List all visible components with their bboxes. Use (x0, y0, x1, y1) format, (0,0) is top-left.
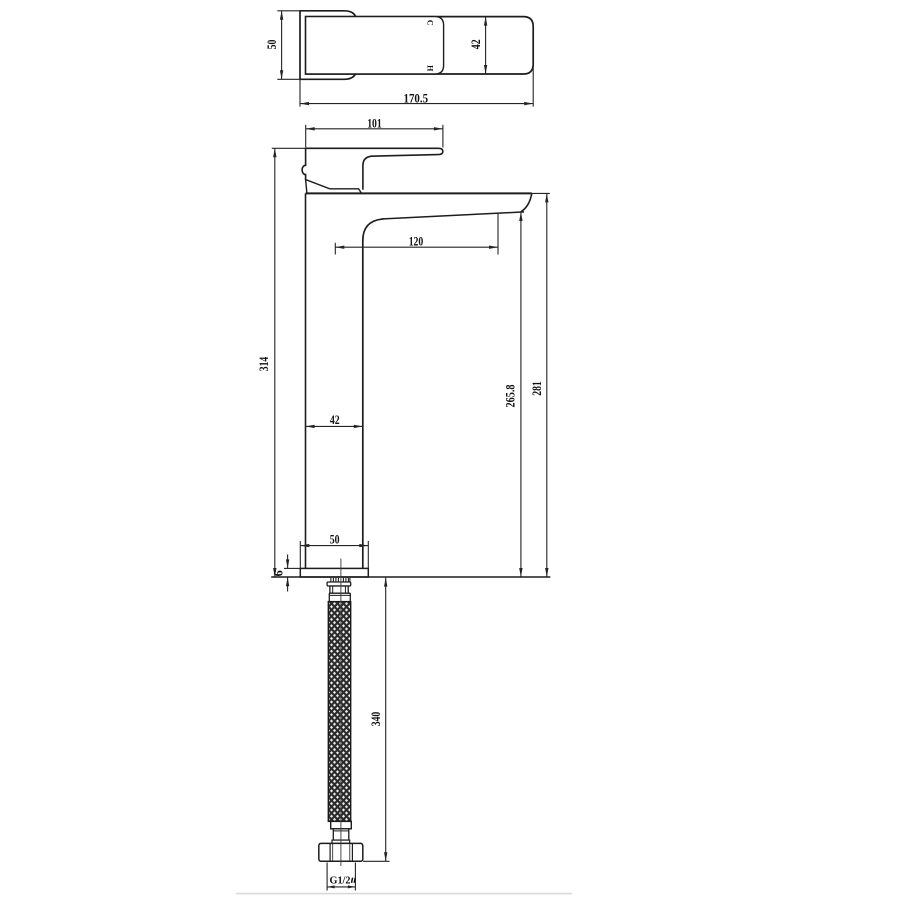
svg-text:G1/2: G1/2 (330, 875, 351, 887)
svg-text:340: 340 (369, 712, 383, 727)
svg-text:265.8: 265.8 (504, 385, 518, 408)
svg-text:6: 6 (271, 570, 285, 576)
svg-text:50: 50 (265, 40, 279, 50)
svg-text:120: 120 (409, 234, 424, 248)
svg-text:314: 314 (257, 357, 271, 372)
svg-text:170.5: 170.5 (404, 92, 429, 106)
svg-text:50: 50 (330, 532, 340, 546)
svg-text:101: 101 (367, 116, 382, 130)
svg-text:42: 42 (330, 413, 340, 427)
svg-text:42: 42 (469, 39, 483, 49)
svg-text:H: H (425, 65, 434, 72)
svg-text:C: C (425, 20, 434, 26)
svg-text:281: 281 (530, 381, 544, 396)
